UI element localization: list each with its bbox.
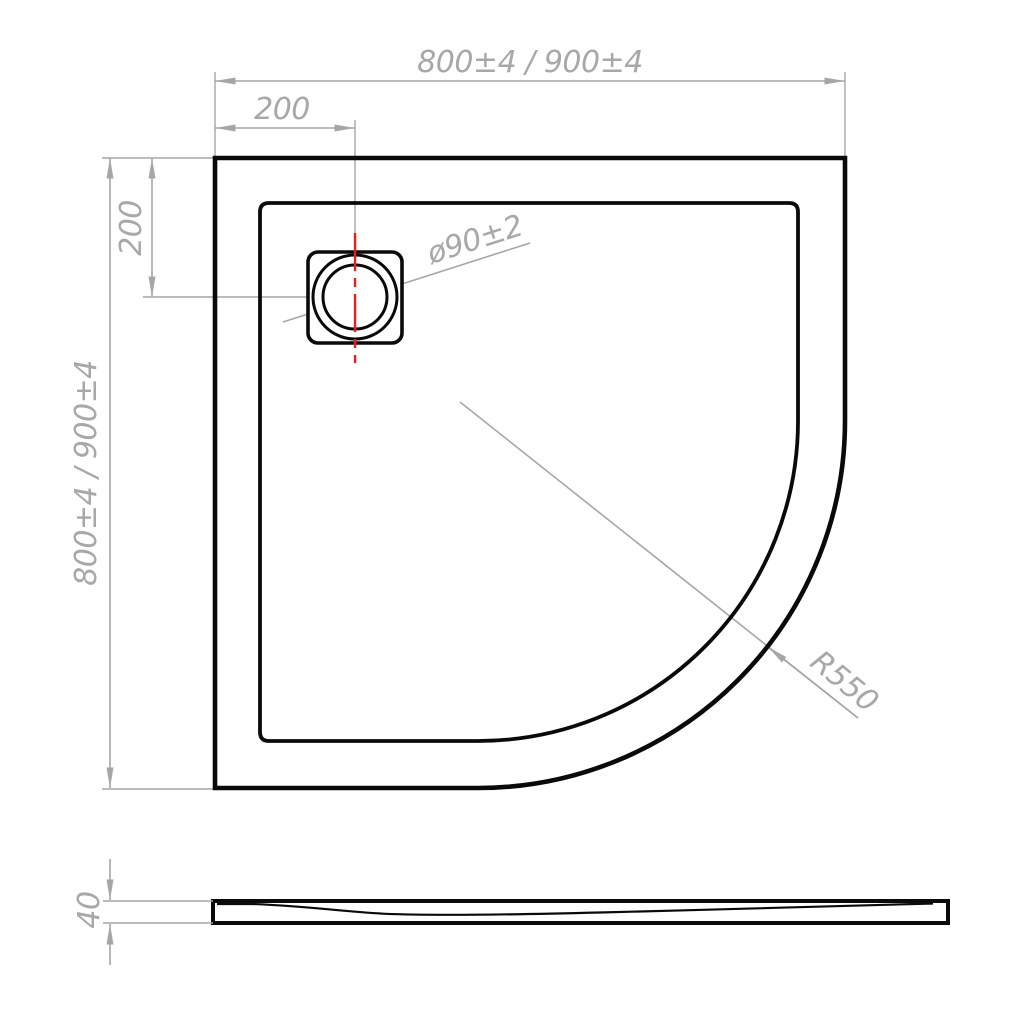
dimension-labels: 800±4 / 900±4 200 800±4 / 900±4 200 ø90±… — [69, 45, 885, 929]
side-view — [103, 859, 948, 965]
drain-offset-side-label: 200 — [114, 200, 149, 256]
top-view — [215, 158, 845, 788]
width-dimension-label: 800±4 / 900±4 — [417, 45, 643, 80]
tray-outer-outline — [215, 158, 845, 788]
height-dimension-label: 800±4 / 900±4 — [69, 360, 104, 586]
drain-offset-top-label: 200 — [254, 92, 310, 127]
corner-radius-label: R550 — [804, 644, 885, 719]
tray-technical-drawing: 800±4 / 900±4 200 800±4 / 900±4 200 ø90±… — [0, 0, 1024, 1024]
dimension-lines — [110, 81, 858, 788]
drain-diameter-label: ø90±2 — [422, 208, 527, 272]
thickness-label: 40 — [72, 891, 107, 928]
